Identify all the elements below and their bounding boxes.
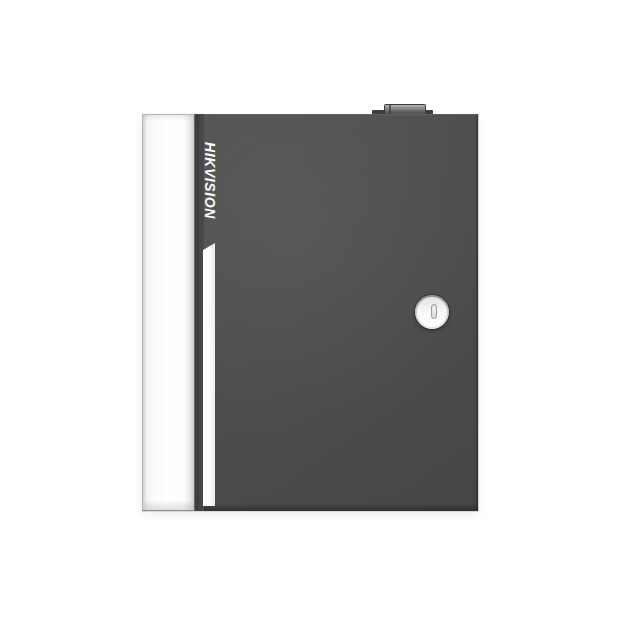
keyhole-icon bbox=[431, 304, 437, 319]
cam-lock bbox=[415, 295, 449, 329]
product-photo: HIKVISION bbox=[0, 0, 620, 620]
brand-logo-text: HIKVISION bbox=[202, 142, 217, 219]
enclosure-box: HIKVISION bbox=[142, 114, 478, 511]
accent-stripe bbox=[203, 243, 215, 506]
front-door-panel: HIKVISION bbox=[194, 114, 478, 511]
left-side-panel bbox=[142, 114, 194, 511]
lock-face bbox=[417, 297, 447, 327]
